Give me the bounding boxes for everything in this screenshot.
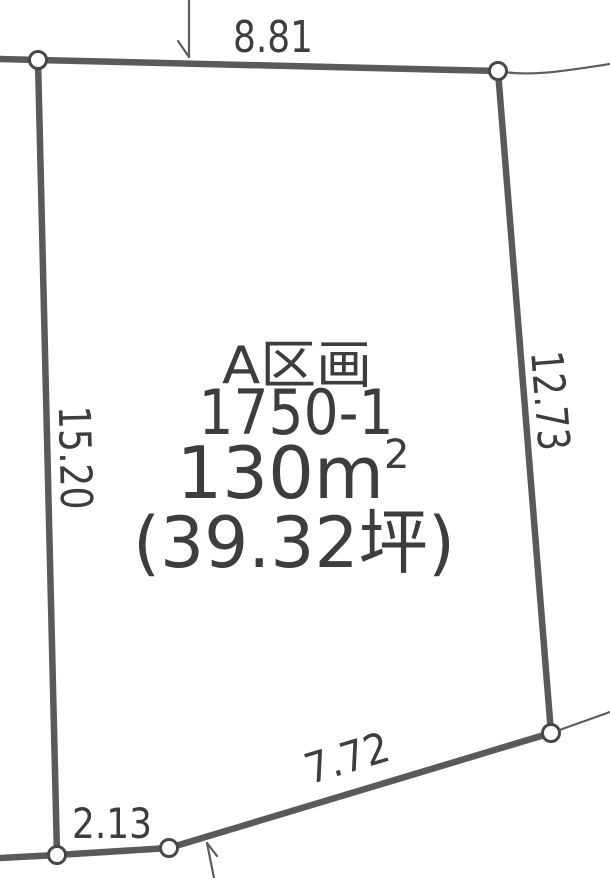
plot-outline-canvas: 8.81 15.20 12.73 7.72 2.13 A区画 1750-1 13… — [0, 0, 610, 878]
top-arrow-barb — [178, 41, 189, 57]
land-plot-survey-diagram: 8.81 15.20 12.73 7.72 2.13 A区画 1750-1 13… — [0, 0, 610, 878]
parcel-area-tsubo: (39.32坪) — [133, 502, 455, 584]
vertex-marker-top-left — [30, 52, 47, 69]
dimension-label-right: 12.73 — [520, 349, 579, 453]
vertex-marker-top-right — [490, 63, 507, 80]
bottom-arrow-icon — [207, 843, 217, 878]
vertex-marker-bottom-mid — [161, 840, 178, 857]
top-arrow-icon — [178, 0, 189, 57]
dimension-label-bottom-left: 2.13 — [72, 799, 152, 848]
parcel-area-sqm-superscript: 2 — [384, 432, 409, 478]
vertex-marker-bottom-left — [49, 847, 66, 864]
dimension-label-top: 8.81 — [233, 12, 313, 63]
vertex-marker-bottom-right — [543, 725, 560, 742]
adjacent-line-top-right — [498, 64, 610, 73]
bottom-left-boundary-line — [0, 848, 169, 858]
dimension-label-left: 15.20 — [48, 405, 102, 510]
